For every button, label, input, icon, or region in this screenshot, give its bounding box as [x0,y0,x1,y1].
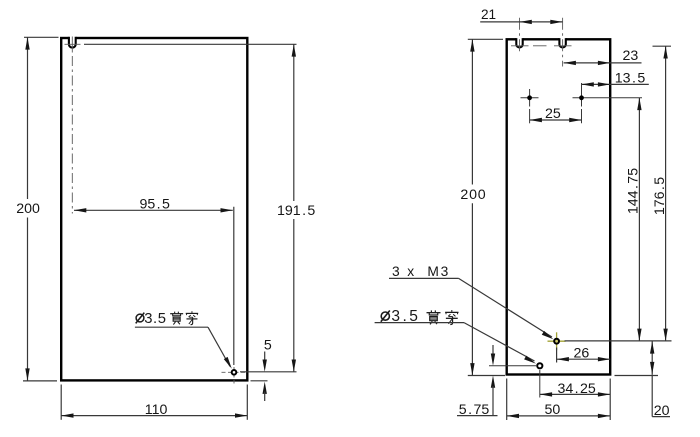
svg-text:25: 25 [545,106,561,122]
svg-text:191.5: 191.5 [277,203,315,219]
svg-text:110: 110 [145,402,168,418]
svg-text:200: 200 [16,201,40,217]
svg-text:50: 50 [545,402,561,418]
svg-text:3 x M3: 3 x M3 [392,264,450,279]
svg-text:34.25: 34.25 [558,381,596,397]
svg-text:3.5: 3.5 [144,311,166,327]
svg-text:5.75: 5.75 [459,402,490,418]
svg-text:200: 200 [460,187,486,203]
svg-text:23: 23 [623,48,639,64]
svg-text:176.5: 176.5 [652,177,668,215]
svg-text:20: 20 [654,403,670,419]
svg-text:144.75: 144.75 [625,168,641,214]
svg-text:21: 21 [481,7,496,22]
svg-text:95.5: 95.5 [140,197,171,213]
svg-text:26: 26 [574,346,590,362]
svg-text:13.5: 13.5 [615,71,646,87]
svg-text:5: 5 [264,337,272,353]
